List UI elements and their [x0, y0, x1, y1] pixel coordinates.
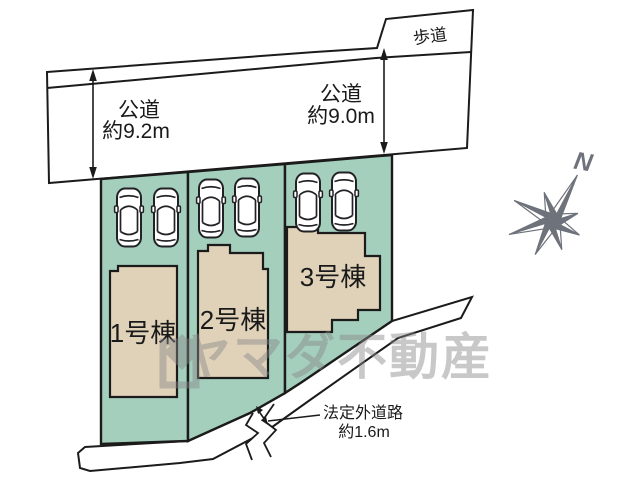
north-label: N [572, 147, 596, 178]
watermark: ヤマダ不動産 [163, 329, 493, 385]
road-width-arrow-right [380, 48, 388, 154]
road-width-arrow-left [89, 69, 97, 179]
building-3-label: 3号棟 [300, 262, 366, 292]
public-road-top: 歩道 公道 約9.2m 公道 約9.0m [47, 10, 473, 183]
car-icon-lot1-a [115, 189, 144, 247]
site-plan-drawing: 歩道 公道 約9.2m 公道 約9.0m 1号棟 2号棟 3号棟 [0, 0, 630, 480]
road-width-right-name: 公道 [320, 83, 362, 106]
car-icon-lot2-b [233, 179, 262, 237]
roadway-edge-line [47, 52, 471, 88]
sidewalk-label: 歩道 [412, 25, 448, 48]
unofficial-road-width: 約1.6m [338, 423, 390, 441]
site-plan-canvas: 歩道 公道 約9.2m 公道 約9.0m 1号棟 2号棟 3号棟 [0, 0, 630, 480]
road-width-left-value: 約9.2m [102, 120, 170, 143]
car-icon-lot3-a [294, 174, 323, 232]
road-width-left-name: 公道 [118, 99, 160, 122]
car-icon-lot2-a [197, 180, 226, 238]
public-road-shape [47, 10, 473, 183]
watermark-text: ヤマダ不動産 [181, 329, 493, 385]
car-icon-lot3-b [330, 173, 359, 231]
unofficial-road-name: 法定外道路 [323, 404, 403, 422]
car-icon-lot1-b [152, 189, 181, 247]
road-width-right-value: 約9.0m [307, 105, 375, 128]
